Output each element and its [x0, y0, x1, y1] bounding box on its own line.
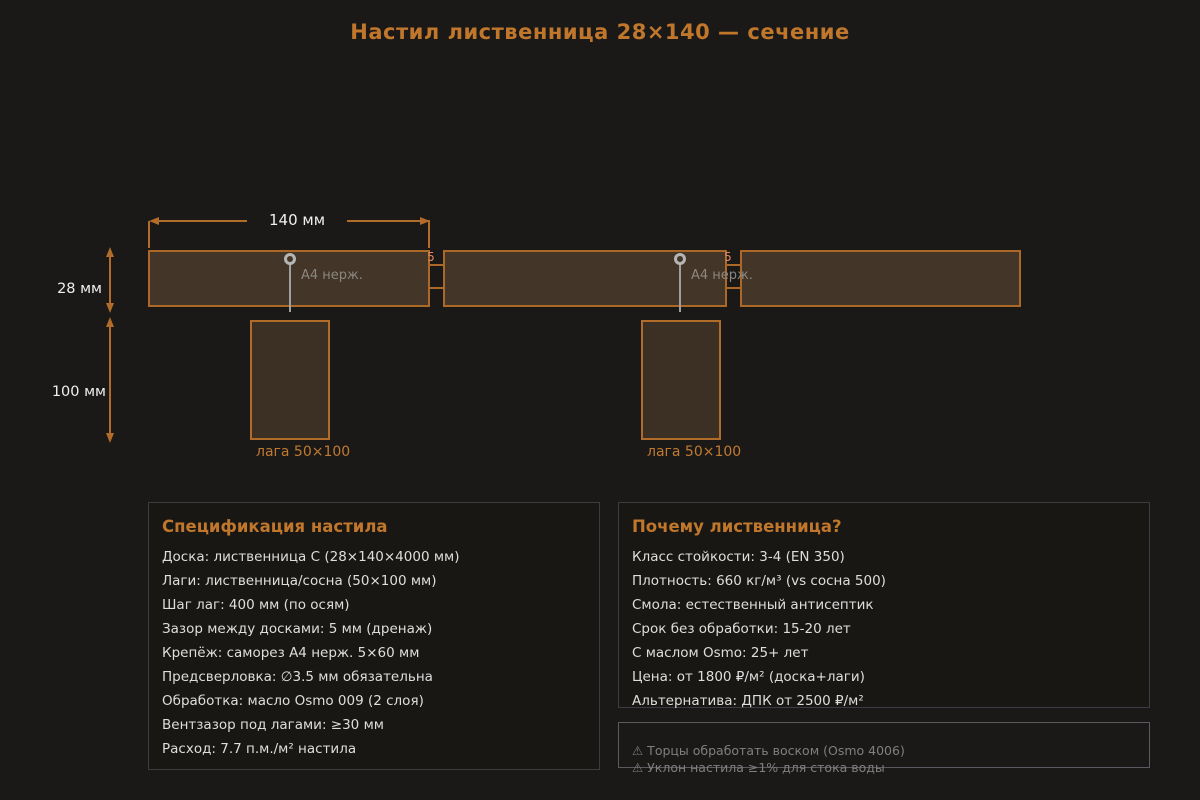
screw-shaft: [289, 262, 291, 312]
joist-caption: лага 50×100: [647, 444, 741, 460]
why-item: Срок без обработки: 15-20 лет: [632, 617, 1136, 641]
joist-dimension-line: [109, 320, 111, 440]
arrowhead-down-icon: [106, 433, 114, 443]
screw-shaft: [679, 262, 681, 312]
spec-item: Предсверловка: ∅3.5 мм обязательна: [162, 665, 586, 689]
thickness-dimension-line: [109, 250, 111, 307]
arrowhead-up-icon: [106, 247, 114, 257]
spec-panel: Спецификация настила Доска: лиственница …: [148, 502, 600, 770]
spec-item: Шаг лаг: 400 мм (по осям): [162, 593, 586, 617]
gap-marker: [428, 287, 444, 289]
gap-marker: [725, 287, 741, 289]
width-dimension-label: 140 мм: [247, 211, 347, 229]
joist-2: [641, 320, 721, 440]
screw-head-icon: [674, 253, 686, 265]
gap-size-label: 5: [721, 250, 735, 264]
gap-marker: [725, 264, 741, 266]
spec-item: Зазор между досками: 5 мм (дренаж): [162, 617, 586, 641]
spec-panel-title: Спецификация настила: [162, 517, 586, 536]
gap-size-label: 5: [424, 250, 438, 264]
screw-label: A4 нерж.: [691, 268, 753, 283]
arrowhead-up-icon: [106, 317, 114, 327]
warning-item: ⚠ Торцы обработать воском (Osmo 4006): [632, 742, 1136, 759]
screw-head-icon: [284, 253, 296, 265]
why-item: С маслом Osmo: 25+ лет: [632, 641, 1136, 665]
spec-item: Доска: лиственница С (28×140×4000 мм): [162, 545, 586, 569]
gap-marker: [428, 264, 444, 266]
screw-label: A4 нерж.: [301, 268, 363, 283]
spec-item: Вентзазор под лагами: ≥30 мм: [162, 713, 586, 737]
joist-caption: лага 50×100: [256, 444, 350, 460]
why-item: Смола: естественный антисептик: [632, 593, 1136, 617]
spec-item: Лаги: лиственница/сосна (50×100 мм): [162, 569, 586, 593]
why-item: Плотность: 660 кг/м³ (vs сосна 500): [632, 569, 1136, 593]
page-title: Настил лиственница 28×140 — сечение: [0, 20, 1200, 44]
arrowhead-down-icon: [106, 303, 114, 313]
thickness-dimension-label: 28 мм: [30, 281, 102, 297]
spec-item: Обработка: масло Osmo 009 (2 слоя): [162, 689, 586, 713]
warning-box: ⚠ Торцы обработать воском (Osmo 4006) ⚠ …: [618, 722, 1150, 768]
why-panel: Почему лиственница? Класс стойкости: 3-4…: [618, 502, 1150, 708]
width-extension-line-right: [428, 221, 430, 248]
deck-board-3: [740, 250, 1021, 307]
why-item: Альтернатива: ДПК от 2500 ₽/м²: [632, 689, 1136, 713]
joist-1: [250, 320, 330, 440]
why-panel-title: Почему лиственница?: [632, 517, 1136, 536]
spec-item: Крепёж: саморез А4 нерж. 5×60 мм: [162, 641, 586, 665]
joist-dimension-label: 100 мм: [30, 384, 106, 400]
warning-item: ⚠ Уклон настила ≥1% для стока воды: [632, 759, 1136, 776]
why-item: Класс стойкости: 3-4 (EN 350): [632, 545, 1136, 569]
arrowhead-left-icon: [149, 217, 159, 225]
why-item: Цена: от 1800 ₽/м² (доска+лаги): [632, 665, 1136, 689]
width-extension-line-left: [148, 221, 150, 248]
spec-item: Расход: 7.7 п.м./м² настила: [162, 737, 586, 761]
